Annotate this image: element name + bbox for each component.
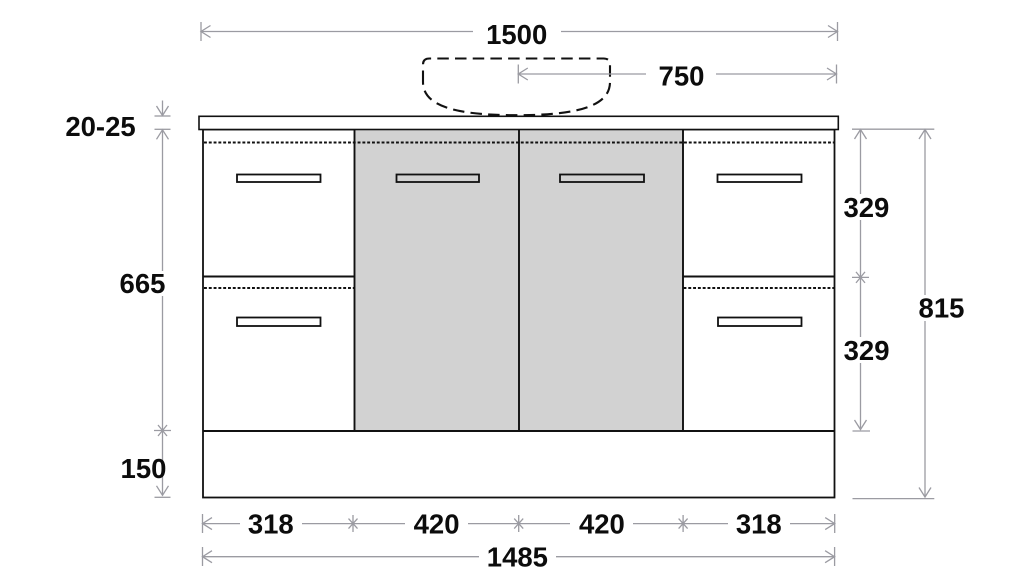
svg-text:1485: 1485 xyxy=(487,542,548,573)
svg-text:20-25: 20-25 xyxy=(65,111,135,142)
svg-text:1500: 1500 xyxy=(486,19,547,50)
svg-text:329: 329 xyxy=(844,335,890,366)
svg-text:420: 420 xyxy=(414,509,460,540)
svg-text:150: 150 xyxy=(121,453,167,484)
svg-text:420: 420 xyxy=(579,509,625,540)
svg-text:318: 318 xyxy=(248,509,294,540)
svg-text:665: 665 xyxy=(120,268,166,299)
svg-text:815: 815 xyxy=(919,293,965,324)
svg-text:329: 329 xyxy=(843,192,889,223)
svg-text:750: 750 xyxy=(659,61,705,92)
svg-text:318: 318 xyxy=(736,509,782,540)
